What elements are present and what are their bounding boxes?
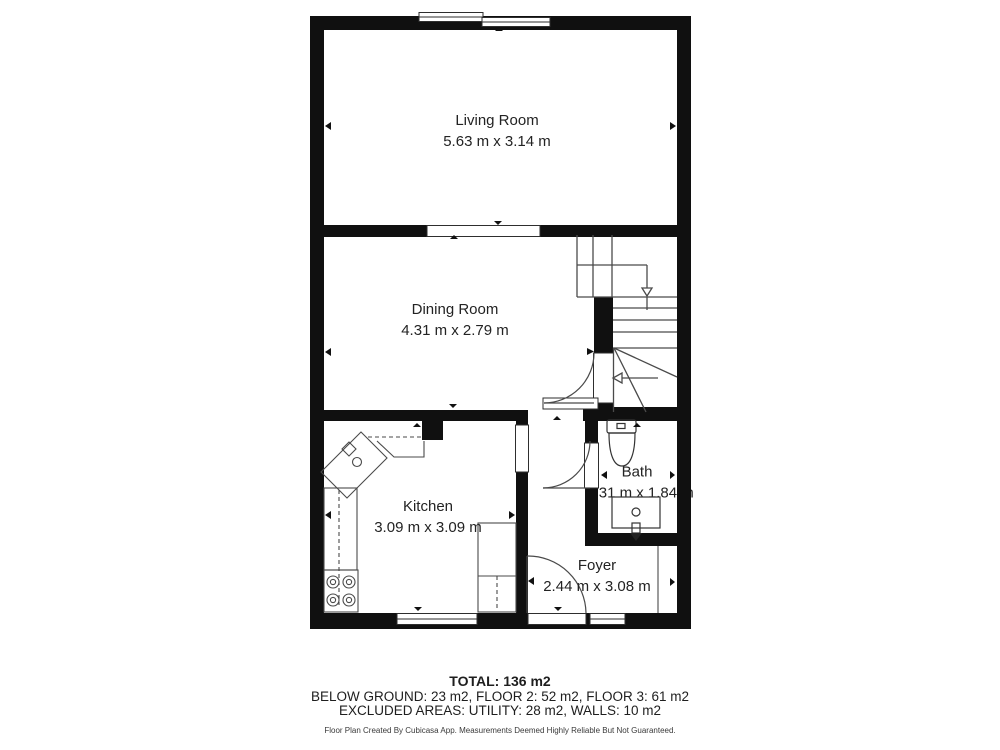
kitchen-sink-drain [353, 458, 362, 467]
summary-total: TOTAL: 136 m2 [0, 673, 1000, 689]
door-arc-bath [543, 441, 590, 488]
room-dimensions: 3.09 m x 3.09 m [374, 517, 482, 538]
room-name: Living Room [443, 110, 551, 131]
room-label-living-room: Living Room 5.63 m x 3.14 m [443, 110, 551, 152]
room-name: Kitchen [374, 496, 482, 517]
room-name: Foyer [543, 555, 651, 576]
room-label-bath: Bath [622, 462, 653, 483]
disclaimer-text: Floor Plan Created By Cubicasa App. Meas… [0, 726, 1000, 735]
door-arc-dining [544, 348, 594, 403]
burner [343, 576, 355, 588]
room-dimensions: 4.31 m x 2.79 m [401, 320, 509, 341]
burner [343, 594, 355, 606]
bath-sink-drain [632, 508, 640, 516]
toilet-flush-button [617, 424, 625, 429]
stove [324, 570, 358, 612]
room-name: Dining Room [401, 299, 509, 320]
toilet-tank [607, 420, 636, 433]
room-dimensions: 5.63 m x 3.14 m [443, 131, 551, 152]
stairs [577, 235, 677, 412]
room-dimensions: 2.44 m x 3.08 m [543, 576, 651, 597]
floor-plan: Living Room 5.63 m x 3.14 m Dining Room … [0, 0, 1000, 750]
room-label-kitchen: Kitchen 3.09 m x 3.09 m [374, 496, 482, 538]
room-label-dining-room: Dining Room 4.31 m x 2.79 m [401, 299, 509, 341]
kitchen-counter-left [324, 488, 357, 570]
summary-floors: BELOW GROUND: 23 m2, FLOOR 2: 52 m2, FLO… [0, 689, 1000, 704]
room-name: Bath [622, 462, 653, 483]
burner [327, 576, 339, 588]
room-label-foyer: Foyer 2.44 m x 3.08 m [543, 555, 651, 597]
burner [327, 594, 339, 606]
summary-excluded: EXCLUDED AREAS: UTILITY: 28 m2, WALLS: 1… [0, 703, 1000, 718]
